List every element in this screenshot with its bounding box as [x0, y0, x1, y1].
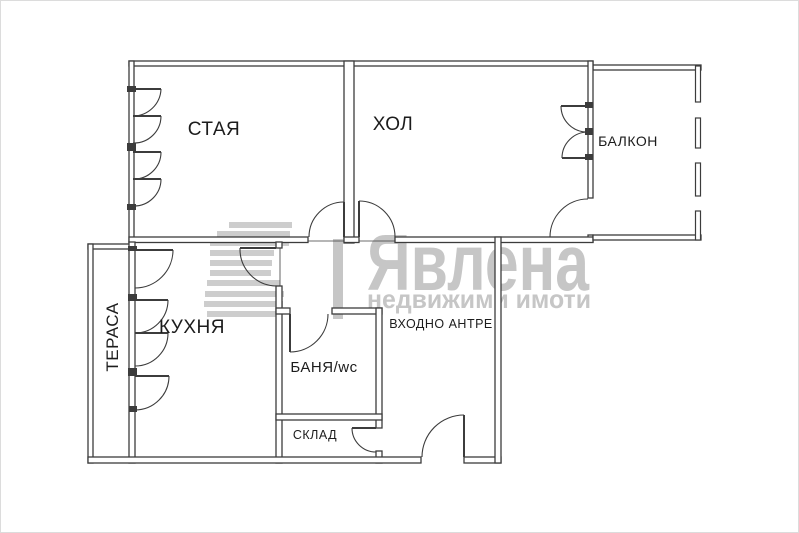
window-casement-arc	[135, 250, 173, 288]
room-label-terasa: ТЕРАСА	[103, 302, 122, 371]
room-label-vhodno-antre: ВХОДНО АНТРЕ	[389, 317, 493, 331]
watermark-stripe	[210, 250, 274, 256]
railing-dash	[696, 66, 701, 102]
door-sklad	[352, 428, 376, 452]
window-casement-arc	[135, 376, 169, 410]
window-frame-tick	[127, 204, 136, 210]
wall-banya-sklad-divider	[276, 414, 382, 420]
window-frame-tick	[585, 102, 593, 108]
wall-antre-right	[495, 237, 501, 463]
wall-terrace-kitchen	[129, 242, 135, 463]
watermark-divider-bar	[333, 239, 343, 319]
watermark-stripe	[210, 260, 272, 266]
door-arc	[309, 202, 344, 237]
window-frame-tick	[128, 294, 137, 301]
wall-kitchen-right-stub	[276, 242, 282, 248]
room-label-staya: СТАЯ	[188, 119, 240, 140]
railing-dash	[696, 163, 701, 196]
door-arc	[422, 415, 464, 457]
door-arc	[290, 314, 328, 352]
window-frame-tick	[129, 406, 137, 412]
wall-staya-hol-divider	[344, 61, 354, 243]
yavlena-watermark: Явлена недвижими имоти	[204, 218, 591, 319]
watermark-stripe	[205, 291, 284, 297]
room-label-balkon: БАЛКОН	[598, 133, 658, 149]
window-casement-arc	[562, 132, 588, 158]
room-label-banya: БАНЯ/wc	[290, 359, 357, 376]
window-casement-arc	[561, 106, 588, 132]
door-arc	[352, 428, 376, 452]
balcony-railing-dashed	[696, 66, 701, 240]
wall-top-main	[129, 61, 593, 66]
window-frame-tick	[128, 368, 137, 376]
wall-upper-bottom-b	[395, 237, 593, 243]
floorplan-svg: Явлена недвижими имоти	[1, 1, 799, 533]
wall-balcony-bottom	[593, 235, 701, 240]
wall-banya-right	[376, 308, 382, 428]
window-casement-arc	[133, 89, 161, 116]
door-banya	[290, 314, 328, 352]
railing-dash	[696, 118, 701, 148]
window-frame-tick	[127, 143, 136, 151]
room-label-sklad: СКЛАД	[293, 428, 337, 442]
wall-upper-bottom-jamb	[344, 237, 359, 243]
watermark-tagline: недвижими имоти	[367, 284, 591, 314]
window-frame-tick	[585, 154, 593, 160]
window-casement-arc	[133, 152, 161, 179]
window-casement-arc	[133, 116, 161, 143]
window-casement-leaf	[135, 250, 173, 376]
door-entrance	[422, 415, 464, 457]
door-staya	[309, 202, 344, 237]
window-casement-arc	[133, 179, 161, 206]
watermark-stripe	[204, 301, 283, 307]
wall-banya-top-b	[332, 308, 382, 314]
room-label-hol: ХОЛ	[373, 114, 414, 135]
room-label-kuhnya: КУХНЯ	[159, 317, 225, 338]
watermark-stripe	[229, 222, 292, 228]
wall-terrace-left	[88, 244, 93, 463]
wall-top-balcony	[593, 65, 701, 70]
watermark-stripe	[217, 231, 290, 237]
window-frame-tick	[128, 246, 137, 251]
wall-bottom-a	[88, 457, 421, 463]
floorplan-canvas: Явлена недвижими имоти	[0, 0, 799, 533]
window-frame-tick	[585, 128, 593, 135]
watermark-stripe	[210, 270, 271, 276]
window-frame-tick	[127, 86, 136, 92]
railing-dash	[696, 211, 701, 240]
wall-terrace-top	[88, 244, 134, 249]
wall-banya-top-a	[276, 308, 290, 314]
